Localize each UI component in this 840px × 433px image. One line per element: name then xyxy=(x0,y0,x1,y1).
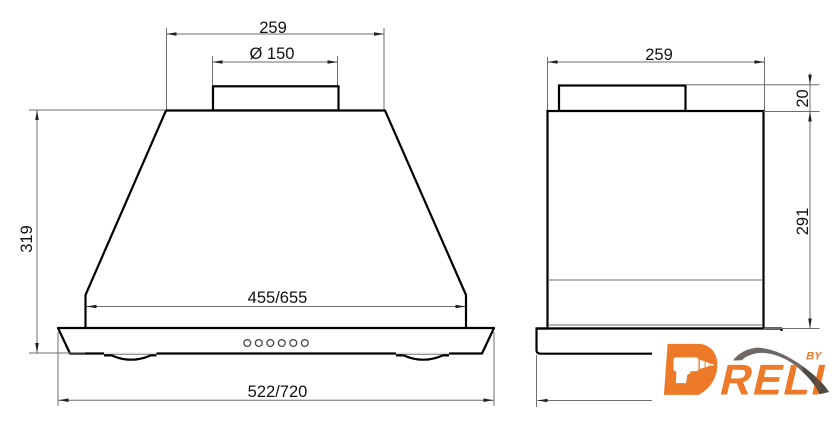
svg-text:291: 291 xyxy=(794,208,812,236)
svg-text:Ø 150: Ø 150 xyxy=(250,45,295,63)
svg-text:455/655: 455/655 xyxy=(248,289,308,307)
svg-text:20: 20 xyxy=(794,89,812,107)
svg-text:259: 259 xyxy=(259,19,287,37)
svg-text:522/720: 522/720 xyxy=(248,383,308,401)
svg-text:259: 259 xyxy=(645,46,673,64)
svg-text:319: 319 xyxy=(18,225,36,253)
